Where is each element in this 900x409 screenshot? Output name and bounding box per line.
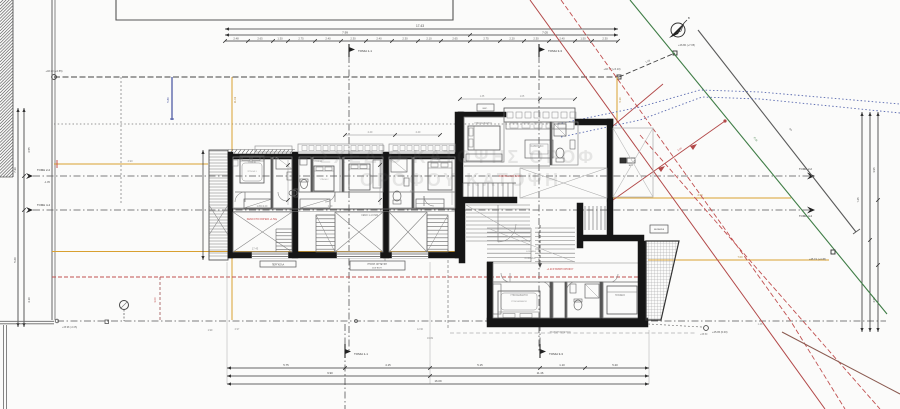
- svg-text:2.65: 2.65: [452, 37, 458, 41]
- svg-text:ΤΟΜΗ 2-2: ΤΟΜΗ 2-2: [37, 168, 50, 172]
- svg-text:ΠΕΡΓΚΟΛΑ: ΠΕΡΓΚΟΛΑ: [272, 264, 285, 267]
- svg-text:ΥΠΝΟΔ.: ΥΠΝΟΔ.: [313, 160, 322, 163]
- svg-text:ΥΠΝΟΔΩΜΑΤΙΟ: ΥΠΝΟΔΩΜΑΤΙΟ: [511, 300, 527, 303]
- svg-text:+1.20 ΣΤΑΘΜΗ ΟΡΟΦΟΥ: +1.20 ΣΤΑΘΜΗ ΟΡΟΦΟΥ: [547, 268, 574, 271]
- svg-text:9.90: 9.90: [327, 371, 333, 375]
- svg-text:3.00: 3.00: [153, 297, 157, 303]
- svg-text:2.75: 2.75: [298, 37, 304, 41]
- svg-text:2.48: 2.48: [233, 37, 239, 41]
- svg-text:ΚΑΘΙΣΤΙΚΟ: ΚΑΘΙΣΤΙΚΟ: [531, 145, 544, 148]
- svg-text:4.90: 4.90: [127, 159, 133, 163]
- svg-text:ΥΠΝΟΔ.1: ΥΠΝΟΔ.1: [247, 170, 257, 173]
- svg-text:ΤΟΜΗ 4-4: ΤΟΜΗ 4-4: [37, 203, 50, 207]
- svg-text:1.35: 1.35: [480, 96, 485, 98]
- svg-text:+45.50: +45.50: [700, 333, 708, 336]
- svg-text:1.80×2.20: 1.80×2.20: [257, 205, 268, 208]
- svg-text:16.09: 16.09: [427, 337, 434, 340]
- svg-text:+46.19 (+4.45): +46.19 (+4.45): [809, 257, 826, 261]
- svg-text:1.90: 1.90: [208, 329, 213, 332]
- svg-text:1.05: 1.05: [520, 96, 525, 98]
- svg-text:7.99: 7.99: [342, 31, 348, 35]
- svg-text:17.43: 17.43: [252, 247, 259, 251]
- svg-text:11.02: 11.02: [233, 96, 237, 103]
- svg-text:+46.77 (+5.10): +46.77 (+5.10): [603, 67, 620, 71]
- svg-text:B: B: [688, 16, 690, 20]
- svg-text:ΥΠΝΟΔ.: ΥΠΝΟΔ.: [247, 161, 256, 164]
- svg-text:ΚΛΙΜΑΚΑ: ΚΛΙΜΑΚΑ: [525, 257, 536, 260]
- svg-text:3.55: 3.55: [27, 147, 31, 153]
- svg-text:ΒΕΡ.: ΒΕΡ.: [483, 108, 488, 110]
- svg-text:ΥΠΝΟΔΩΜΑΤΙΟ: ΥΠΝΟΔΩΜΑΤΙΟ: [474, 122, 492, 125]
- svg-text:ΤΟΜΗ 1-1: ΤΟΜΗ 1-1: [358, 49, 372, 53]
- svg-text:2.30: 2.30: [402, 37, 408, 41]
- svg-text:1.50: 1.50: [580, 37, 586, 41]
- svg-text:5.20: 5.20: [612, 363, 618, 367]
- svg-text:2.40: 2.40: [559, 37, 565, 41]
- svg-text:2.40: 2.40: [376, 37, 382, 41]
- svg-text:2.40: 2.40: [416, 131, 421, 134]
- svg-text:11.46: 11.46: [537, 371, 544, 375]
- svg-text:2.40: 2.40: [368, 131, 373, 134]
- svg-text:2.10: 2.10: [426, 37, 432, 41]
- svg-text:ΟΡΟΦΟΥ ΚΑΤΟΨΗ: ΟΡΟΦΟΥ ΚΑΤΟΨΗ: [360, 170, 561, 190]
- svg-text:4.10: 4.10: [27, 297, 31, 303]
- svg-text:7.05: 7.05: [542, 31, 548, 35]
- svg-text:ΣΧΕΔΙΟ ΚΑΤΟΨΗΣ ΟΡΟΦ: ΣΧΕΔΙΟ ΚΑΤΟΨΗΣ ΟΡΟΦ: [320, 147, 596, 167]
- svg-text:4.15: 4.15: [385, 363, 391, 367]
- svg-text:ΤΟΜΗ 3-3: ΤΟΜΗ 3-3: [549, 352, 563, 356]
- svg-text:2.40: 2.40: [325, 37, 331, 41]
- svg-text:7.25: 7.25: [856, 197, 860, 203]
- svg-text:1.80: 1.80: [328, 205, 333, 208]
- svg-text:+46.80 (+7.05): +46.80 (+7.05): [678, 43, 695, 47]
- svg-text:ΥΠΟΧΡ. ΦΥΤΕΥΣΗ: ΥΠΟΧΡ. ΦΥΤΕΥΣΗ: [367, 263, 387, 266]
- svg-text:ΤΟΜΗ 3-3: ΤΟΜΗ 3-3: [548, 49, 562, 53]
- svg-text:2.97: 2.97: [235, 328, 240, 331]
- svg-text:12.90: 12.90: [417, 328, 424, 331]
- svg-text:5.15: 5.15: [477, 363, 483, 367]
- svg-text:5.80: 5.80: [166, 97, 170, 103]
- svg-text:+45.98 (-0.05): +45.98 (-0.05): [62, 326, 77, 329]
- svg-text:1.46: 1.46: [758, 323, 763, 326]
- svg-text:16.09: 16.09: [435, 379, 442, 383]
- svg-text:ΓΡΑΦΕΙΟ: ΓΡΑΦΕΙΟ: [615, 294, 625, 297]
- svg-text:2.75: 2.75: [483, 37, 489, 41]
- svg-text:2.20: 2.20: [509, 37, 515, 41]
- svg-text:+46.30 (+0.55): +46.30 (+0.55): [45, 69, 62, 73]
- svg-text:ΚΕΝΟ ΣΤΟ ΙΣΟΓΕΙΟ +1.50μ: ΚΕΝΟ ΣΤΟ ΙΣΟΓΕΙΟ +1.50μ: [247, 218, 278, 221]
- svg-text:ΒΕΡΑΝΤΑ: ΒΕΡΑΝΤΑ: [654, 228, 664, 231]
- svg-text:ΥΠΝΟΔ.2: ΥΠΝΟΔ.2: [319, 178, 329, 181]
- svg-text:3.95: 3.95: [872, 167, 876, 173]
- svg-text:ΥΠΝΟΔΩΜΑΤΙΟ: ΥΠΝΟΔΩΜΑΤΙΟ: [510, 294, 528, 297]
- svg-text:ΤΟΜΗ 1-1: ΤΟΜΗ 1-1: [354, 352, 368, 356]
- svg-text:ΥΠΝΟΔ.: ΥΠΝΟΔ.: [431, 158, 440, 161]
- svg-text:1.30: 1.30: [277, 37, 283, 41]
- svg-text:-1.05: -1.05: [44, 180, 50, 184]
- svg-text:17.43: 17.43: [416, 24, 424, 28]
- svg-text:5.10: 5.10: [618, 97, 622, 103]
- svg-text:5.75: 5.75: [283, 363, 289, 367]
- svg-text:2.30: 2.30: [602, 37, 608, 41]
- svg-text:+45.95 (0.00): +45.95 (0.00): [712, 330, 728, 334]
- svg-text:2.30: 2.30: [350, 37, 356, 41]
- svg-text:ΣΤΑΘΜΗ ΜΠΕΤΟΝ: ΣΤΑΘΜΗ ΜΠΕΤΟΝ: [550, 331, 571, 334]
- svg-text:1.20: 1.20: [410, 190, 415, 193]
- svg-text:5.60: 5.60: [13, 257, 17, 263]
- svg-text:1.10: 1.10: [559, 363, 565, 367]
- svg-text:2.50: 2.50: [697, 193, 703, 197]
- svg-text:7.00: 7.00: [737, 255, 743, 259]
- svg-text:ΚΕΝΟ 1-1 ΚΛΙΜ.: ΚΕΝΟ 1-1 ΚΛΙΜ.: [361, 215, 379, 217]
- svg-text:2.30: 2.30: [533, 37, 539, 41]
- svg-text:ΙΣΟΓΕΙΟΥ: ΙΣΟΓΕΙΟΥ: [372, 268, 383, 270]
- svg-text:7.36: 7.36: [13, 167, 17, 173]
- svg-text:2.65: 2.65: [257, 37, 263, 41]
